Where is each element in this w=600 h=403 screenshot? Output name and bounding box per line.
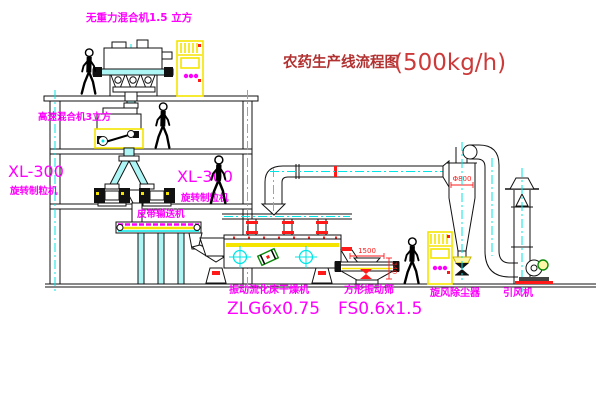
- fan-motor: [538, 260, 548, 270]
- worker-figure: [405, 238, 419, 283]
- dryer-name-label: 振动流化床干燥机: [229, 283, 309, 296]
- induced-draft-fan: [515, 260, 553, 284]
- mixer-outlet: [125, 92, 137, 101]
- worker-figure: [156, 103, 170, 148]
- elbow-joint: [463, 145, 477, 159]
- conveyor-leg: [138, 233, 144, 284]
- sieve-height-dim: 340: [391, 262, 399, 274]
- fluid-bed-dryer: [200, 214, 363, 283]
- granulator-wall-model-label: XL-300: [8, 162, 64, 181]
- gravity-mixer-label: 无重力混合机1.5 立方: [85, 11, 193, 24]
- diagram-title-capacity: (500kg/h): [394, 50, 506, 76]
- ground-line: [45, 284, 596, 287]
- granulator-wall-name-label: 旋转制粒机: [9, 185, 58, 197]
- diagram-title: 农药生产线流程图: [282, 53, 399, 71]
- sieve-name-label: 方形振动筛: [344, 283, 394, 296]
- floor-slab-top: [44, 96, 258, 101]
- cabinet-knob: [438, 266, 442, 270]
- cabinet-knob: [184, 74, 188, 78]
- dryer-support: [206, 268, 226, 283]
- fan-suction-duct: [470, 145, 518, 277]
- cabinet-knob: [443, 266, 447, 270]
- conveyor-leg: [178, 233, 184, 284]
- cyclone-label: 旋风除尘器: [429, 286, 481, 299]
- dryer-support: [312, 268, 332, 283]
- control-cabinet: [428, 232, 452, 284]
- sieve-model-label: FS0.6x1.5: [338, 299, 422, 319]
- cyclone-separator: Φ800: [443, 142, 477, 280]
- conveyor-leg: [158, 233, 164, 284]
- dryer-model-label: ZLG6x0.75: [227, 299, 320, 319]
- sieve-width-dim: 1500: [358, 247, 376, 255]
- mixer-shaft: [93, 69, 173, 75]
- cabinet-knob: [194, 74, 198, 78]
- belt-conveyor-label: 皮带输送机: [136, 208, 185, 220]
- floor-slab-2: [50, 149, 252, 154]
- cad-canvas: 无重力混合机1.5 立方 高速混合机3立方: [0, 0, 600, 403]
- fan-label: 引风机: [503, 286, 533, 299]
- exhaust-duct: [262, 164, 452, 215]
- control-cabinet: [177, 41, 203, 96]
- high-speed-mixer-label: 高速混合机3立方: [38, 111, 112, 123]
- cabinet-knob: [189, 74, 193, 78]
- high-speed-mixer: [95, 103, 143, 148]
- granulator-name-label: 旋转制粒机: [180, 192, 229, 204]
- process-flow-diagram: 无重力混合机1.5 立方 高速混合机3立方: [0, 0, 600, 403]
- cabinet-knob: [433, 266, 437, 270]
